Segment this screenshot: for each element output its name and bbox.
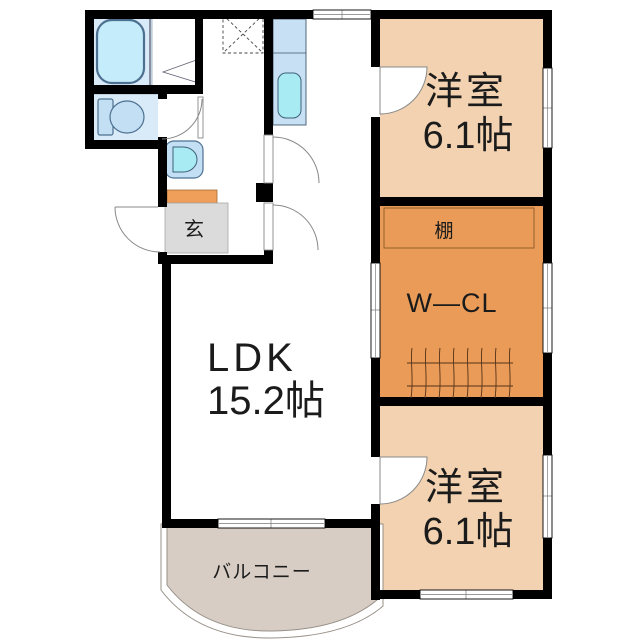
bedroom-bottom-area-label: 6.1帖 [423, 511, 514, 553]
wall-closet-south [371, 397, 552, 406]
window-bedroom-bottom-south [420, 590, 513, 599]
entrance-step [167, 190, 217, 203]
washbasin-bowl-icon [173, 147, 197, 172]
entrance-label: 玄 [184, 218, 204, 241]
window-bedroom-bottom-right [543, 455, 552, 538]
window-kitchen-top [313, 10, 371, 19]
wall-ldk-north [158, 255, 273, 264]
wall-washroom-east [195, 10, 203, 94]
shelf-box [384, 208, 534, 248]
kitchen-sink-icon [278, 73, 301, 118]
wall-right-1 [543, 10, 552, 68]
bedroom-top-area-label: 6.1帖 [423, 115, 514, 157]
wall-bedroom-top-south [371, 197, 552, 206]
shelf-label: 棚 [434, 220, 453, 242]
balcony-label: バルコニー [212, 562, 312, 583]
toilet-bowl-icon [110, 101, 144, 133]
window-closet-right [543, 263, 552, 353]
door-entrance [115, 207, 160, 252]
wall-bedroom-bottom-south-right [513, 590, 552, 599]
wall-top-right [371, 10, 552, 19]
floorplan-svg: 洋室 6.1帖 棚 W—CL 洋室 6.1帖 LDK 15.2帖 玄 バルコニー [0, 0, 640, 640]
wall-bedroom-bottom-south-left [371, 590, 420, 599]
wall-toilet-east-top [158, 94, 167, 99]
wall-toilet-south [85, 140, 167, 149]
wall-mid-3 [371, 358, 380, 457]
ldk-name-label: LDK [207, 336, 297, 380]
wall-hall-stub [256, 183, 273, 202]
wall-mid-1 [371, 10, 380, 67]
walk-in-closet-label: W—CL [407, 288, 498, 318]
window-ldk-bottom [218, 519, 325, 528]
ldk-area-label: 15.2帖 [207, 379, 325, 423]
wall-bath-south [85, 85, 203, 94]
wall-hall-east-upper [264, 10, 273, 135]
bedroom-bottom-name-label: 洋室 [425, 467, 507, 509]
wall-left-outer [85, 10, 94, 149]
window-bedroom-top-right [543, 68, 552, 148]
door-hall-to-kitchen [264, 135, 319, 183]
wall-ldk-west [162, 255, 171, 528]
wall-ldk-south-left [162, 519, 218, 528]
door-toilet [158, 97, 203, 139]
wall-entrance-north [158, 137, 167, 207]
bathtub-icon [97, 20, 144, 83]
floorplan-image: 洋室 6.1帖 棚 W—CL 洋室 6.1帖 LDK 15.2帖 玄 バルコニー [0, 0, 640, 640]
wall-mid-2 [371, 117, 380, 263]
wall-right-4 [543, 538, 552, 599]
sliding-opening-closet-left [371, 263, 380, 358]
door-hall-to-ldk [264, 203, 318, 250]
bedroom-top-name-label: 洋室 [425, 71, 507, 113]
wall-mid-4 [371, 503, 380, 600]
